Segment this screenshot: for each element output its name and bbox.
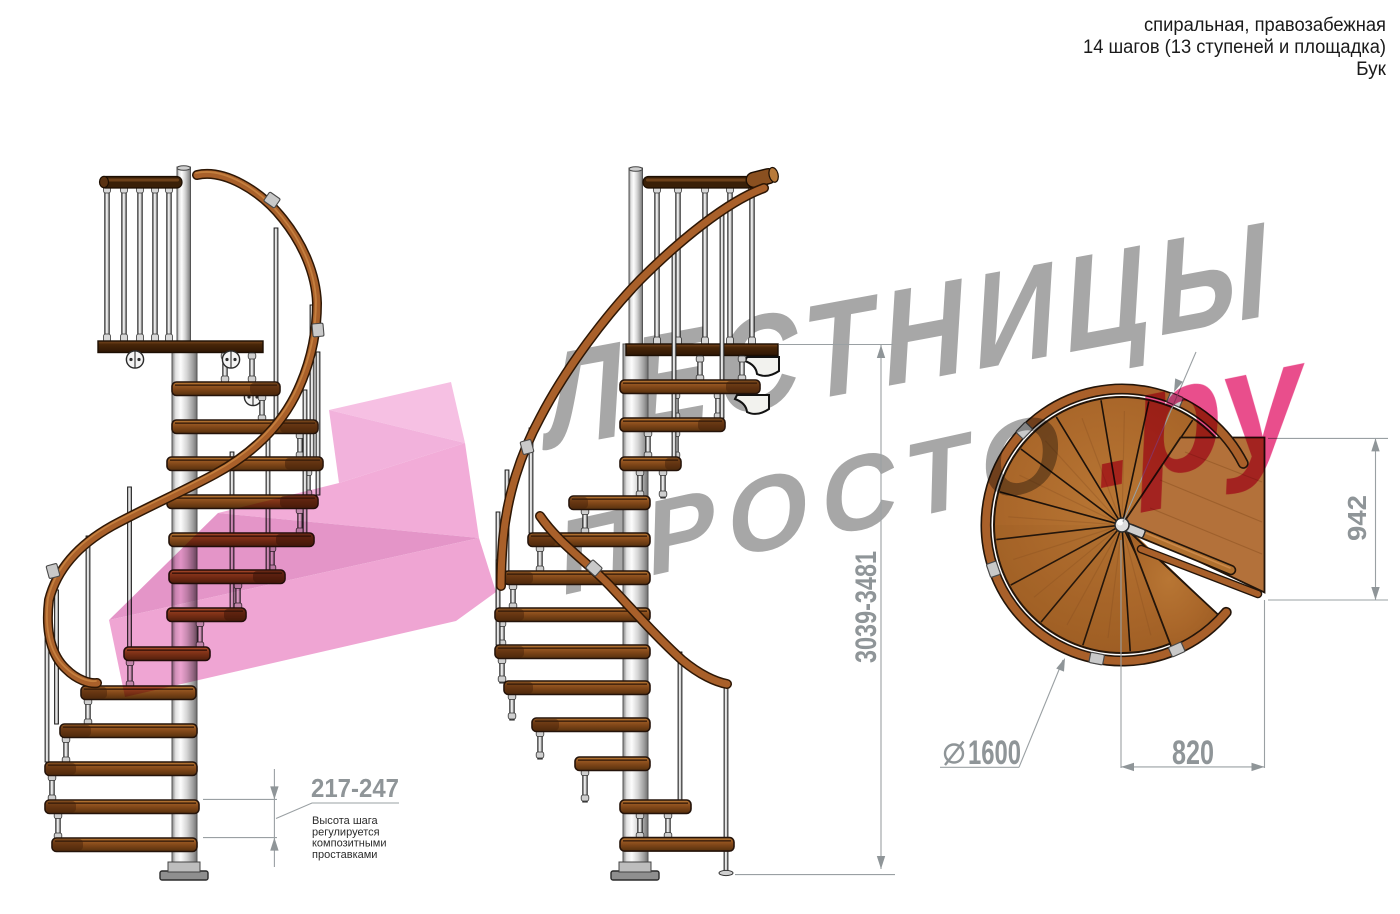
svg-text:спиральная, правозабежная: спиральная, правозабежная <box>1144 15 1386 36</box>
svg-text:регулируется: регулируется <box>312 826 380 838</box>
svg-text:942: 942 <box>1342 495 1372 541</box>
svg-text:1600: 1600 <box>968 734 1021 772</box>
svg-text:217-247: 217-247 <box>311 773 399 803</box>
svg-text:Бук: Бук <box>1356 59 1387 80</box>
svg-text:14 шагов (13 ступеней и площад: 14 шагов (13 ступеней и площадка) <box>1083 37 1386 58</box>
svg-text:820: 820 <box>1172 734 1214 772</box>
svg-text:Высота шага: Высота шага <box>312 815 379 827</box>
svg-text:проставками: проставками <box>312 849 377 861</box>
svg-text:композитными: композитными <box>312 838 386 850</box>
svg-text:3039-3481: 3039-3481 <box>850 551 883 663</box>
